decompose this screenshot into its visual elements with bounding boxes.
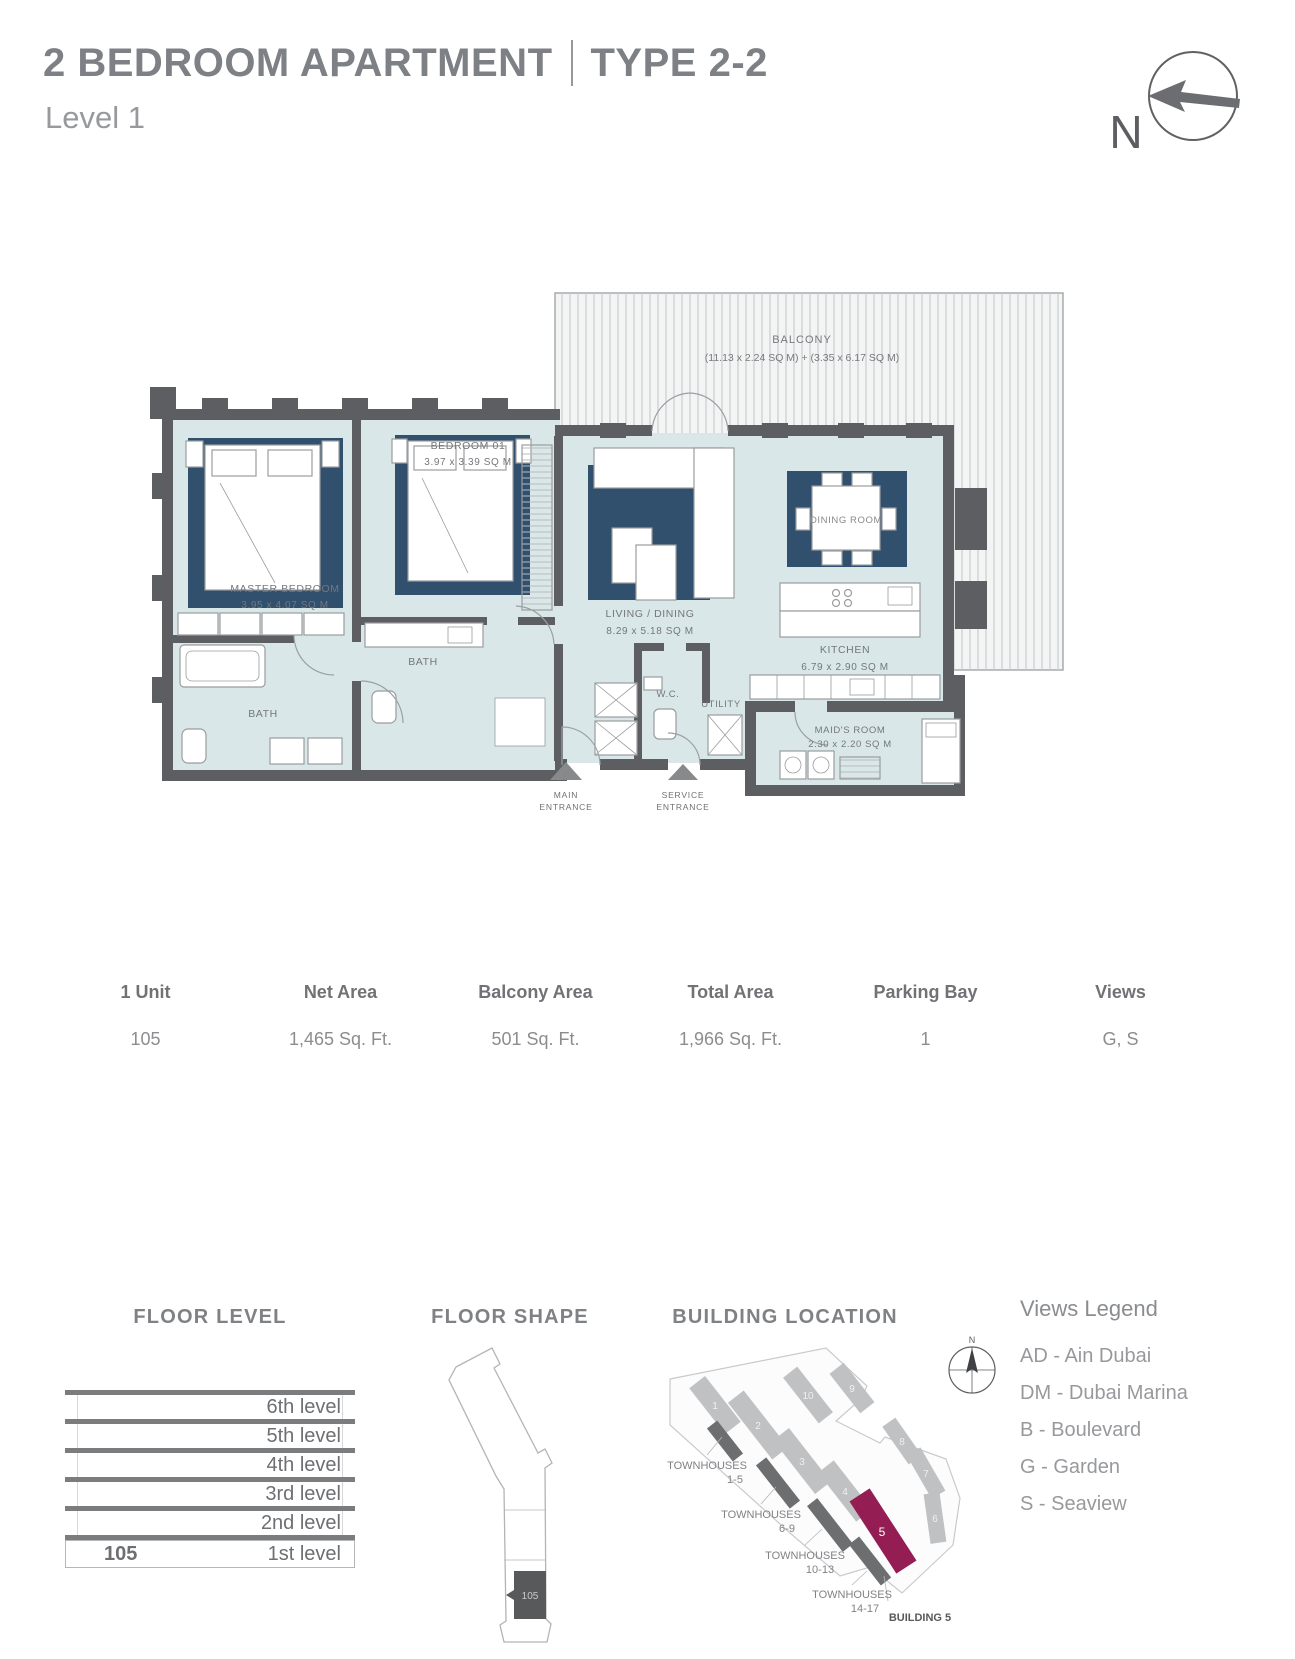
col-header-unit: 1 Unit	[48, 982, 243, 1003]
building-number-3: 3	[799, 1457, 805, 1468]
main-entrance-line1: MAIN	[554, 790, 578, 800]
townhouses-6-9-line1: TOWNHOUSES	[721, 1509, 801, 1521]
building-number-1: 1	[712, 1401, 718, 1412]
service-entrance-line1: SERVICE	[662, 790, 705, 800]
floor-level-5: 5th level	[65, 1424, 355, 1448]
living-dining-label: LIVING / DINING	[606, 608, 695, 620]
master-bedroom-dims: 3.95 x 4.07 SQ M	[241, 600, 328, 611]
col-value-views: G, S	[1023, 1029, 1218, 1050]
col-header-net-area: Net Area	[243, 982, 438, 1003]
master-bath-label: BATH	[248, 708, 278, 720]
title-divider	[571, 40, 573, 86]
summary-table: 1 Unit105 Net Area1,465 Sq. Ft. Balcony …	[48, 982, 1218, 1050]
col-header-balcony-area: Balcony Area	[438, 982, 633, 1003]
page-title: 2 BEDROOM APARTMENT TYPE 2-2	[43, 40, 768, 86]
title-right: TYPE 2-2	[591, 41, 768, 86]
map-compass-n: N	[969, 1335, 976, 1345]
living-dining-dims: 8.29 x 5.18 SQ M	[606, 626, 693, 637]
townhouses-10-13-line2: 10-13	[806, 1564, 834, 1576]
floor-plan-page: 2 BEDROOM APARTMENT TYPE 2-2 Level 1 N B…	[0, 0, 1295, 1659]
kitchen-label: KITCHEN	[820, 644, 870, 656]
floor-shape-title: FLOOR SHAPE	[400, 1306, 620, 1329]
views-legend-title: Views Legend	[1020, 1296, 1188, 1322]
legend-garden: G - Garden	[1020, 1449, 1188, 1486]
floor-level-3: 3rd level	[65, 1482, 355, 1506]
floor-level-title: FLOOR LEVEL	[65, 1306, 355, 1329]
balcony-dims: (11.13 x 2.24 SQ M) + (3.35 x 6.17 SQ M)	[705, 352, 899, 364]
main-entrance-line2: ENTRANCE	[539, 802, 592, 812]
bath2-label: BATH	[408, 656, 438, 668]
building-number-2: 2	[755, 1421, 761, 1432]
townhouses-1-5-line2: 1-5	[727, 1474, 743, 1486]
col-value-balcony-area: 501 Sq. Ft.	[438, 1029, 633, 1050]
maids-room-label: MAID'S ROOM	[815, 725, 886, 736]
map-compass-icon: N	[949, 1335, 995, 1393]
col-header-total-area: Total Area	[633, 982, 828, 1003]
current-unit-number: 105	[104, 1543, 137, 1566]
service-entrance-arrow-icon	[668, 764, 698, 780]
level-subtitle: Level 1	[45, 100, 145, 136]
legend-dubai-marina: DM - Dubai Marina	[1020, 1375, 1188, 1412]
building-number-4: 4	[842, 1487, 848, 1498]
building-number-8: 8	[899, 1437, 905, 1448]
bedroom01-dims: 3.97 x 3.39 SQ M	[424, 457, 511, 468]
floor-level-current: 105 1st level	[65, 1540, 355, 1568]
col-value-net-area: 1,465 Sq. Ft.	[243, 1029, 438, 1050]
col-value-total-area: 1,966 Sq. Ft.	[633, 1029, 828, 1050]
floor-shape-diagram: 105	[400, 1335, 620, 1655]
north-arrow-icon: N	[1080, 36, 1245, 161]
utility-label: UTILITY	[701, 699, 741, 710]
building-number-10: 10	[802, 1391, 814, 1402]
building-number-5: 5	[879, 1525, 886, 1539]
service-entrance-line2: ENTRANCE	[656, 802, 709, 812]
col-value-unit: 105	[48, 1029, 243, 1050]
floor-plan: BALCONY (11.13 x 2.24 SQ M) + (3.35 x 6.…	[150, 283, 1070, 843]
legend-seaview: S - Seaview	[1020, 1486, 1188, 1523]
building-number-7: 7	[923, 1469, 929, 1480]
townhouses-14-17-line2: 14-17	[851, 1603, 879, 1615]
kitchen-dims: 6.79 x 2.90 SQ M	[801, 662, 888, 673]
wc-label: W.C.	[657, 689, 680, 700]
floor-level-1: 1st level	[268, 1543, 341, 1566]
floor-shape-unit-number: 105	[522, 1591, 539, 1602]
floor-level-6: 6th level	[65, 1395, 355, 1419]
bedroom01-label: BEDROOM 01	[431, 440, 506, 452]
legend-ain-dubai: AD - Ain Dubai	[1020, 1338, 1188, 1375]
master-bedroom-label: MASTER BEDROOM	[230, 583, 339, 595]
north-letter: N	[1109, 106, 1142, 158]
building-number-6: 6	[932, 1514, 938, 1525]
dining-room-label: DINING ROOM	[810, 515, 882, 526]
townhouses-14-17-line1: TOWNHOUSES	[812, 1589, 892, 1601]
col-value-parking: 1	[828, 1029, 1023, 1050]
balcony-label: BALCONY	[772, 334, 832, 346]
maids-room-dims: 2.30 x 2.20 SQ M	[808, 739, 892, 750]
building-location-map: 1 2 3 4 8 7 6 10 9 5 TOWNHOUSES 1-5 TOWN…	[630, 1333, 1030, 1659]
building-5-label: BUILDING 5	[889, 1612, 951, 1624]
views-legend: Views Legend AD - Ain Dubai DM - Dubai M…	[1020, 1296, 1188, 1523]
legend-boulevard: B - Boulevard	[1020, 1412, 1188, 1449]
title-left: 2 BEDROOM APARTMENT	[43, 41, 553, 86]
building-location-title: BUILDING LOCATION	[655, 1306, 915, 1329]
townhouses-1-5-line1: TOWNHOUSES	[667, 1460, 747, 1472]
floor-level-2: 2nd level	[65, 1511, 355, 1535]
floor-level-4: 4th level	[65, 1453, 355, 1477]
col-header-views: Views	[1023, 982, 1218, 1003]
floor-level-diagram: 6th level 5th level 4th level 3rd level …	[65, 1390, 355, 1568]
townhouses-10-13-line1: TOWNHOUSES	[765, 1550, 845, 1562]
col-header-parking: Parking Bay	[828, 982, 1023, 1003]
building-number-9: 9	[849, 1384, 855, 1395]
townhouses-6-9-line2: 6-9	[779, 1523, 795, 1535]
